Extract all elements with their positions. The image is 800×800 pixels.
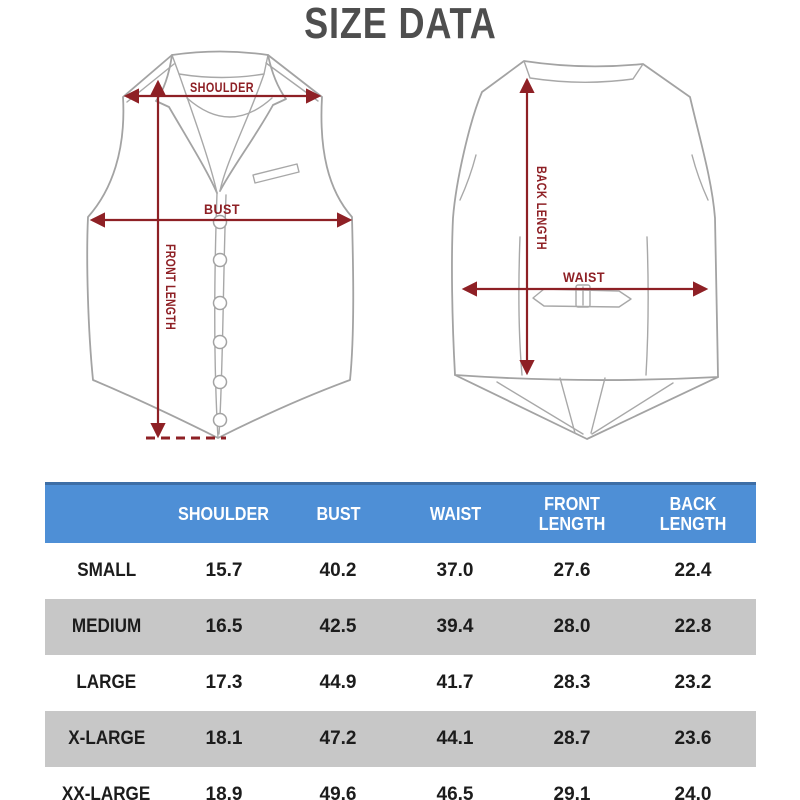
chest-pocket xyxy=(253,164,299,183)
cell-shoulder: 15.7 xyxy=(168,543,280,599)
cell-waist: 41.7 xyxy=(396,655,514,711)
cell-shoulder: 16.5 xyxy=(168,599,280,655)
shirt-neckline xyxy=(187,98,272,117)
cell-shoulder: 18.1 xyxy=(168,711,280,767)
table-row-xx-large: XX-LARGE 18.9 49.6 46.5 29.1 24.0 xyxy=(45,767,756,800)
cell-shoulder: 18.9 xyxy=(168,767,280,800)
shoulder-measurement-label: SHOULDER xyxy=(190,79,254,95)
size-table: SHOULDER BUST WAIST FRONT LENGTH BACK LE… xyxy=(45,482,756,800)
cell-shoulder: 17.3 xyxy=(168,655,280,711)
table-row-small: SMALL 15.7 40.2 37.0 27.6 22.4 xyxy=(45,543,756,599)
cell-back-length: 22.4 xyxy=(630,543,756,599)
column-header-bust: BUST xyxy=(280,484,396,544)
button-placket xyxy=(215,193,226,438)
back-vest-tails xyxy=(455,375,718,439)
size-label: X-LARGE xyxy=(45,711,168,767)
cell-bust: 44.9 xyxy=(280,655,396,711)
table-row-x-large: X-LARGE 18.1 47.2 44.1 28.7 23.6 xyxy=(45,711,756,767)
page-title: SIZE DATA xyxy=(0,0,800,48)
waist-measurement-label: WAIST xyxy=(563,269,605,285)
cell-front-length: 28.3 xyxy=(514,655,630,711)
cell-back-length: 24.0 xyxy=(630,767,756,800)
back-vest-diagram: BACK LENGTH WAIST xyxy=(420,50,780,470)
cell-back-length: 23.6 xyxy=(630,711,756,767)
cell-bust: 42.5 xyxy=(280,599,396,655)
cell-front-length: 29.1 xyxy=(514,767,630,800)
column-header-shoulder: SHOULDER xyxy=(168,484,280,544)
cell-waist: 46.5 xyxy=(396,767,514,800)
cell-waist: 44.1 xyxy=(396,711,514,767)
cell-bust: 47.2 xyxy=(280,711,396,767)
front-vest-diagram: SHOULDER BUST FRONT LENGTH xyxy=(60,50,400,470)
armhole-seams xyxy=(460,155,708,200)
back-length-measurement-label: BACK LENGTH xyxy=(534,166,550,250)
cell-bust: 49.6 xyxy=(280,767,396,800)
cell-front-length: 28.0 xyxy=(514,599,630,655)
size-label: XX-LARGE xyxy=(45,767,168,800)
header-row: SHOULDER BUST WAIST FRONT LENGTH BACK LE… xyxy=(45,484,756,544)
column-header-back-length: BACK LENGTH xyxy=(630,484,756,544)
size-label: LARGE xyxy=(45,655,168,711)
back-measurements: BACK LENGTH WAIST xyxy=(464,80,706,373)
cell-front-length: 28.7 xyxy=(514,711,630,767)
cell-back-length: 22.8 xyxy=(630,599,756,655)
front-length-measurement-label: FRONT LENGTH xyxy=(163,244,179,330)
page-title-text: SIZE DATA xyxy=(304,0,496,48)
cell-bust: 40.2 xyxy=(280,543,396,599)
table-row-medium: MEDIUM 16.5 42.5 39.4 28.0 22.8 xyxy=(45,599,756,655)
cell-waist: 37.0 xyxy=(396,543,514,599)
size-chart-image: SIZE DATA xyxy=(0,0,800,800)
cell-waist: 39.4 xyxy=(396,599,514,655)
column-header-front-length: FRONT LENGTH xyxy=(514,484,630,544)
column-header-waist: WAIST xyxy=(396,484,514,544)
size-label: SMALL xyxy=(45,543,168,599)
size-label: MEDIUM xyxy=(45,599,168,655)
bust-measurement-label: BUST xyxy=(204,201,240,217)
back-vest-outline xyxy=(452,61,718,380)
column-header-size xyxy=(45,484,168,544)
cell-front-length: 27.6 xyxy=(514,543,630,599)
cell-back-length: 23.2 xyxy=(630,655,756,711)
table-row-large: LARGE 17.3 44.9 41.7 28.3 23.2 xyxy=(45,655,756,711)
